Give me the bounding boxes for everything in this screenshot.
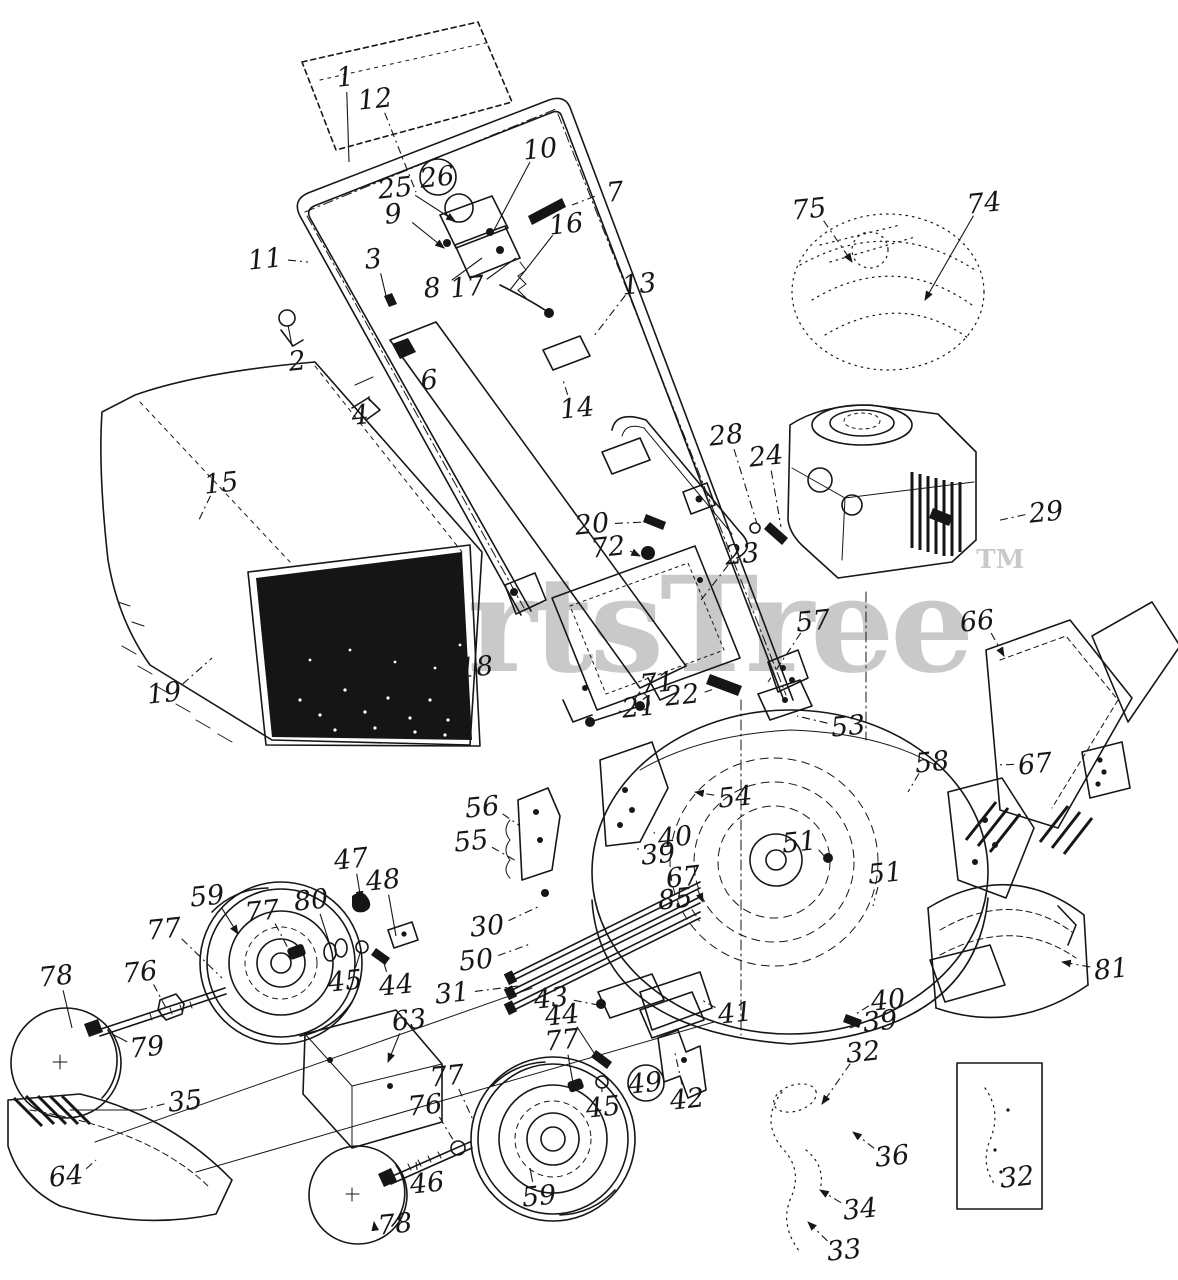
part-label-64: 64 xyxy=(47,1159,84,1193)
engine-drawing xyxy=(750,405,976,578)
part-label-12: 12 xyxy=(356,82,393,116)
leader-line-9 xyxy=(412,222,444,248)
leader-line-76 xyxy=(439,1117,455,1143)
leader-line-29 xyxy=(996,515,1025,521)
leader-line-40 xyxy=(654,832,655,834)
part-label-58: 58 xyxy=(913,745,950,779)
leader-line-78 xyxy=(63,990,72,1028)
leader-line-13 xyxy=(594,295,625,336)
part-label-45: 45 xyxy=(325,964,363,999)
part-label-9: 9 xyxy=(383,198,403,231)
leader-line-19 xyxy=(183,658,212,684)
leader-line-74 xyxy=(925,216,973,300)
part-label-28: 28 xyxy=(706,418,744,453)
part-label-33: 33 xyxy=(825,1233,862,1267)
leader-line-56 xyxy=(503,814,520,826)
part-label-31: 31 xyxy=(433,976,470,1010)
upper-handle-panel-drawing xyxy=(302,22,512,150)
part-label-39: 39 xyxy=(861,1004,898,1038)
leader-line-55 xyxy=(492,847,518,862)
leader-line-59 xyxy=(222,908,238,934)
part-label-46: 46 xyxy=(407,1166,445,1201)
part-label-7: 7 xyxy=(605,176,626,209)
part-label-74: 74 xyxy=(965,186,1002,220)
part-label-24: 24 xyxy=(746,439,784,474)
part-label-44: 44 xyxy=(376,968,414,1003)
part-label-48: 48 xyxy=(363,863,401,898)
leader-line-24 xyxy=(771,471,781,527)
leader-line-14 xyxy=(563,380,568,395)
rear-skirt-drawing xyxy=(928,885,1088,1018)
part-label-75: 75 xyxy=(790,192,827,226)
part-label-59: 59 xyxy=(520,1179,557,1213)
part-label-4: 4 xyxy=(349,399,370,432)
part-label-36: 36 xyxy=(873,1139,910,1173)
leader-line-20 xyxy=(615,522,646,523)
part-label-72: 72 xyxy=(589,530,626,564)
leader-line-32 xyxy=(822,1064,850,1104)
left-wheel-drawing xyxy=(11,882,418,1118)
leader-line-1 xyxy=(347,92,349,162)
part-label-35: 35 xyxy=(166,1084,203,1118)
part-label-53: 53 xyxy=(829,709,866,743)
leader-line-36 xyxy=(853,1132,874,1148)
parts-diagram-canvas: 1121072526916817113132461415191820722371… xyxy=(0,0,1178,1280)
part-label-42: 42 xyxy=(667,1082,705,1117)
leader-line-42 xyxy=(675,1053,682,1085)
part-label-19: 19 xyxy=(145,676,182,710)
part-label-81: 81 xyxy=(1092,952,1129,986)
leader-line-72 xyxy=(630,551,640,556)
bag-fabric-texture xyxy=(118,602,232,742)
part-label-41: 41 xyxy=(715,996,753,1031)
part-label-18: 18 xyxy=(457,650,494,684)
leader-line-7 xyxy=(572,196,595,205)
leader-line-30 xyxy=(509,906,540,921)
part-label-55: 55 xyxy=(452,824,489,858)
part-label-16: 16 xyxy=(547,207,584,241)
part-label-2: 2 xyxy=(286,345,307,378)
leader-line-10 xyxy=(493,162,530,232)
part-label-8: 8 xyxy=(422,272,442,305)
cable-dotted-drawing xyxy=(770,1079,821,1252)
part-label-17: 17 xyxy=(448,270,486,305)
leader-line-17 xyxy=(487,258,516,279)
part-label-11: 11 xyxy=(246,242,283,276)
part-label-32: 32 xyxy=(844,1035,881,1069)
part-label-14: 14 xyxy=(558,391,595,425)
part-label-6: 6 xyxy=(419,364,439,397)
engine-shroud-dotted-drawing xyxy=(792,214,984,370)
part-label-56: 56 xyxy=(463,790,500,824)
part-label-50: 50 xyxy=(457,943,494,977)
mower-deck-drawing xyxy=(592,592,1034,1044)
leader-line-51 xyxy=(819,850,826,858)
leader-line-77 xyxy=(275,924,290,952)
part-label-15: 15 xyxy=(202,466,239,500)
leader-line-3 xyxy=(381,273,387,300)
part-label-54: 54 xyxy=(716,780,753,814)
part-label-10: 10 xyxy=(521,132,558,166)
parts-diagram-page: PartsTreeTM xyxy=(0,0,1178,1280)
part-label-59: 59 xyxy=(188,879,225,913)
part-label-23: 23 xyxy=(722,537,760,572)
part-label-49: 49 xyxy=(625,1066,663,1101)
part-label-76: 76 xyxy=(121,955,158,989)
part-label-51: 51 xyxy=(866,856,903,890)
leader-line-54 xyxy=(695,792,714,795)
leader-line-6 xyxy=(406,362,412,371)
part-label-57: 57 xyxy=(794,604,832,639)
rear-guard-panels-drawing xyxy=(966,602,1178,854)
part-label-85: 85 xyxy=(656,882,693,916)
part-label-32: 32 xyxy=(998,1160,1035,1194)
part-label-77: 77 xyxy=(243,894,281,929)
part-label-13: 13 xyxy=(620,267,657,301)
leader-line-50 xyxy=(498,944,530,956)
leader-line-41 xyxy=(702,1000,715,1008)
part-label-29: 29 xyxy=(1026,495,1064,530)
part-label-63: 63 xyxy=(390,1003,427,1037)
part-label-79: 79 xyxy=(128,1030,165,1064)
part-label-22: 22 xyxy=(662,678,700,713)
part-label-77: 77 xyxy=(145,912,183,947)
part-label-78: 78 xyxy=(376,1207,413,1241)
leader-line-4 xyxy=(369,396,370,401)
part-label-80: 80 xyxy=(292,883,329,917)
part-label-3: 3 xyxy=(363,243,383,276)
leader-line-64 xyxy=(86,1160,96,1169)
part-label-1: 1 xyxy=(335,61,355,94)
part-label-67: 67 xyxy=(1016,747,1054,782)
part-label-78: 78 xyxy=(37,959,74,993)
leader-line-35 xyxy=(140,1104,164,1110)
part-label-26: 26 xyxy=(417,160,455,195)
leader-line-16 xyxy=(510,235,553,290)
part-label-76: 76 xyxy=(406,1088,443,1122)
leader-line-75 xyxy=(824,221,852,262)
part-label-30: 30 xyxy=(468,909,505,943)
part-label-34: 34 xyxy=(841,1192,878,1226)
part-label-77: 77 xyxy=(543,1023,581,1058)
part-label-51: 51 xyxy=(780,825,817,859)
part-label-21: 21 xyxy=(619,690,657,725)
leader-line-67 xyxy=(996,764,1014,765)
leader-line-22 xyxy=(705,689,714,692)
leader-line-53 xyxy=(797,716,827,723)
leader-line-11 xyxy=(288,260,308,262)
leader-line-34 xyxy=(820,1190,841,1203)
part-label-66: 66 xyxy=(958,604,995,638)
part-label-45: 45 xyxy=(583,1090,621,1125)
